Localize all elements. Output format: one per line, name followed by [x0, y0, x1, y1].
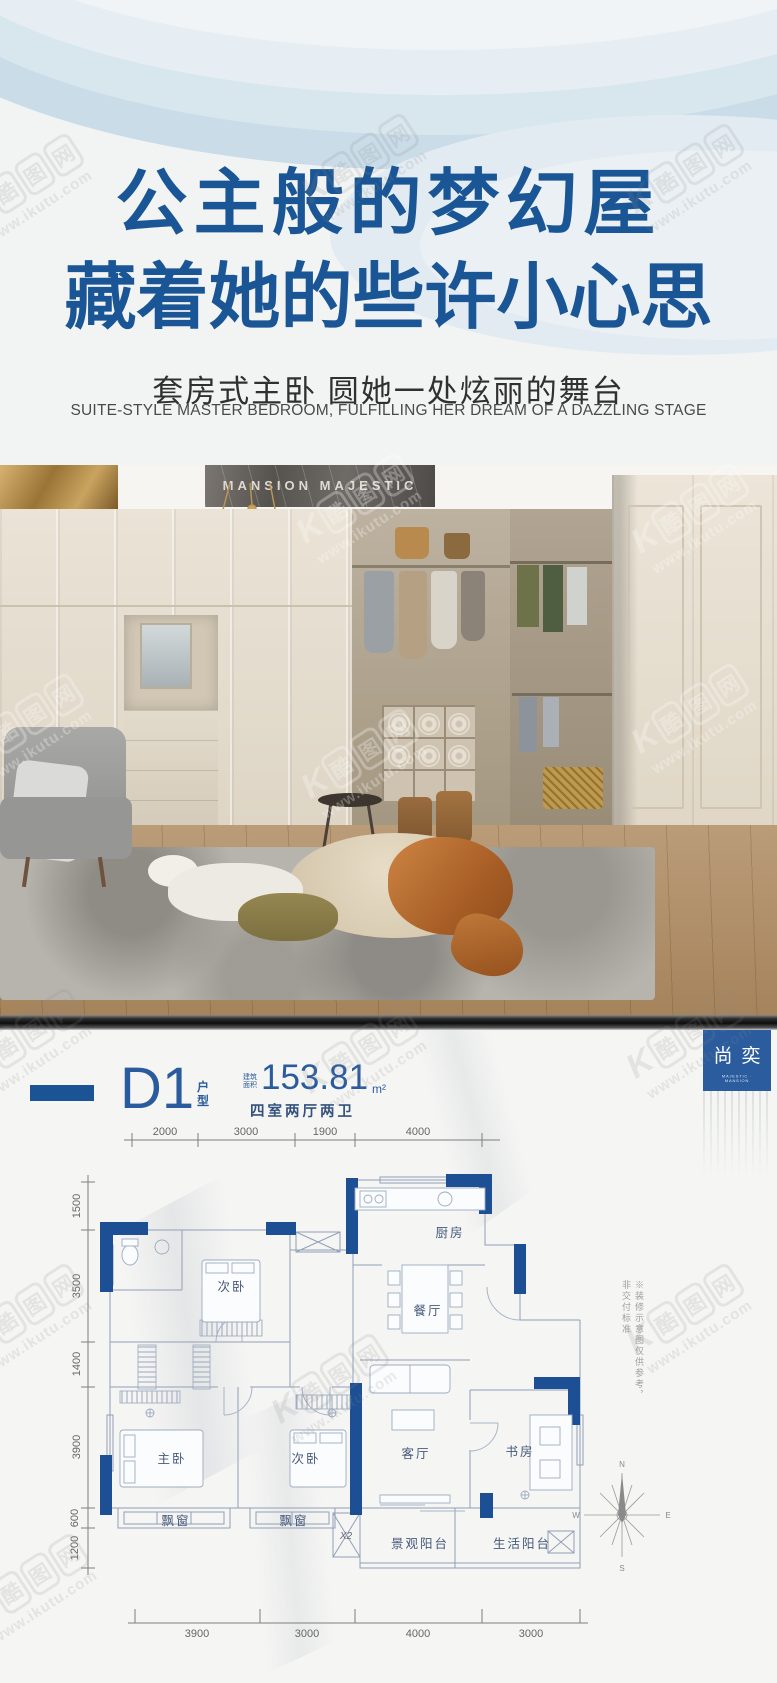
dim-label: 1900 [313, 1126, 337, 1138]
section-separator [0, 1015, 777, 1030]
hanging-garment [399, 571, 427, 659]
room-label-balcony-life: 生活阳台 [493, 1536, 551, 1551]
subtitle-english: SUITE-STYLE MASTER BEDROOM, FULFILLING H… [0, 402, 777, 420]
hanging-garment [543, 565, 563, 632]
room-label-master: 主卧 [157, 1452, 186, 1466]
dim-label: 3000 [295, 1628, 319, 1640]
brand-name: 尚奕 [703, 1041, 771, 1068]
unit-name: D1 [120, 1060, 194, 1118]
wardrobe-divider [0, 605, 352, 607]
area-unit: m² [372, 1082, 386, 1096]
wardrobe-hatch [120, 1320, 350, 1409]
dim-label: 4000 [406, 1628, 430, 1640]
compass-e: E [665, 1511, 670, 1520]
armchair-seat [0, 797, 132, 859]
dim-label: 3000 [234, 1126, 258, 1138]
room-label-kitchen: 厨房 [435, 1225, 464, 1240]
room-label-study: 书房 [505, 1444, 534, 1459]
clothes-rod [512, 693, 612, 696]
dim-label: 600 [69, 1509, 81, 1527]
gold-marble-panel [0, 465, 118, 509]
drawer-stack [124, 710, 218, 830]
door-panel [628, 505, 684, 809]
compass-s: S [619, 1564, 624, 1573]
floor-plan-section: 尚奕 MAJESTIC · MANSION D1 户型 建筑面积 153.81 … [0, 1030, 777, 1683]
door-panel [700, 505, 762, 809]
handbag [395, 527, 429, 559]
compass [584, 1473, 660, 1557]
dim-label: 1200 [69, 1536, 81, 1560]
brand-badge: 尚奕 MAJESTIC · MANSION [703, 1030, 771, 1091]
room-label-living: 客厅 [401, 1446, 430, 1461]
dim-label: 3900 [71, 1435, 83, 1459]
room-label-bedroom-top: 次卧 [217, 1280, 246, 1294]
dim-label: 3000 [519, 1628, 543, 1640]
poster: 公主般的梦幻屋 藏着她的些许小心思 套房式主卧 圆她一处炫丽的舞台 SUITE-… [0, 0, 777, 1683]
dimension-left [81, 1175, 95, 1575]
dimension-bottom [128, 1609, 588, 1623]
dim-label: 1400 [71, 1352, 83, 1376]
hanging-garment [567, 567, 587, 625]
dim-label: 3900 [185, 1628, 209, 1640]
hanging-garment [431, 571, 457, 649]
rolled-towel [448, 745, 470, 767]
clothes-rod [510, 561, 612, 564]
hanging-garment [364, 571, 394, 653]
headline-line2: 藏着她的些许小心思 [0, 262, 777, 334]
handbag [444, 533, 470, 559]
room-label-bedroom-mid: 次卧 [291, 1452, 320, 1466]
room-label-dining: 餐厅 [413, 1303, 442, 1318]
dim-label: 4000 [406, 1126, 430, 1138]
unit-type-label: 户型 [197, 1080, 211, 1108]
rolled-towel [388, 745, 410, 767]
dim-label: 1500 [71, 1194, 83, 1218]
mesh-basket [543, 767, 603, 809]
brand-tagline: MAJESTIC · MANSION [710, 1074, 764, 1084]
headline-line1: 公主般的梦幻屋 [0, 168, 777, 240]
hanging-garment [519, 697, 537, 752]
hanging-garment [461, 571, 485, 641]
dim-label: 3500 [71, 1274, 83, 1298]
hero-section: 公主般的梦幻屋 藏着她的些许小心思 套房式主卧 圆她一处炫丽的舞台 SUITE-… [0, 0, 777, 465]
mirror [140, 623, 192, 689]
plan-walls [107, 1177, 583, 1568]
area-label: 建筑面积 [243, 1074, 259, 1090]
closet-shelf [352, 565, 510, 568]
olive-pillow [238, 893, 338, 941]
room-label-balcony-view: 景观阳台 [391, 1536, 449, 1551]
rolled-towel [448, 713, 470, 735]
rolled-towel [388, 713, 410, 735]
hanging-garment [543, 697, 559, 747]
floor-plan-drawing: 2000 3000 1900 4000 1500 3500 1400 3900 … [0, 1115, 777, 1660]
room-label-bay-left: 飘窗 [161, 1514, 190, 1528]
side-table [318, 793, 382, 807]
dim-label: 2000 [153, 1126, 177, 1138]
compass-n: N [619, 1460, 625, 1469]
rolled-towel [418, 745, 440, 767]
walkin-closet-photo: MANSION MAJESTIC [0, 465, 777, 1015]
hanging-garment [517, 565, 539, 627]
compass-w: W [572, 1511, 580, 1520]
shaft-label: X2 [339, 1531, 353, 1542]
rolled-towel [418, 713, 440, 735]
room-label-bay-mid: 飘窗 [279, 1514, 308, 1528]
area-value: 153.81 [261, 1060, 368, 1095]
accent-bar [30, 1085, 94, 1101]
